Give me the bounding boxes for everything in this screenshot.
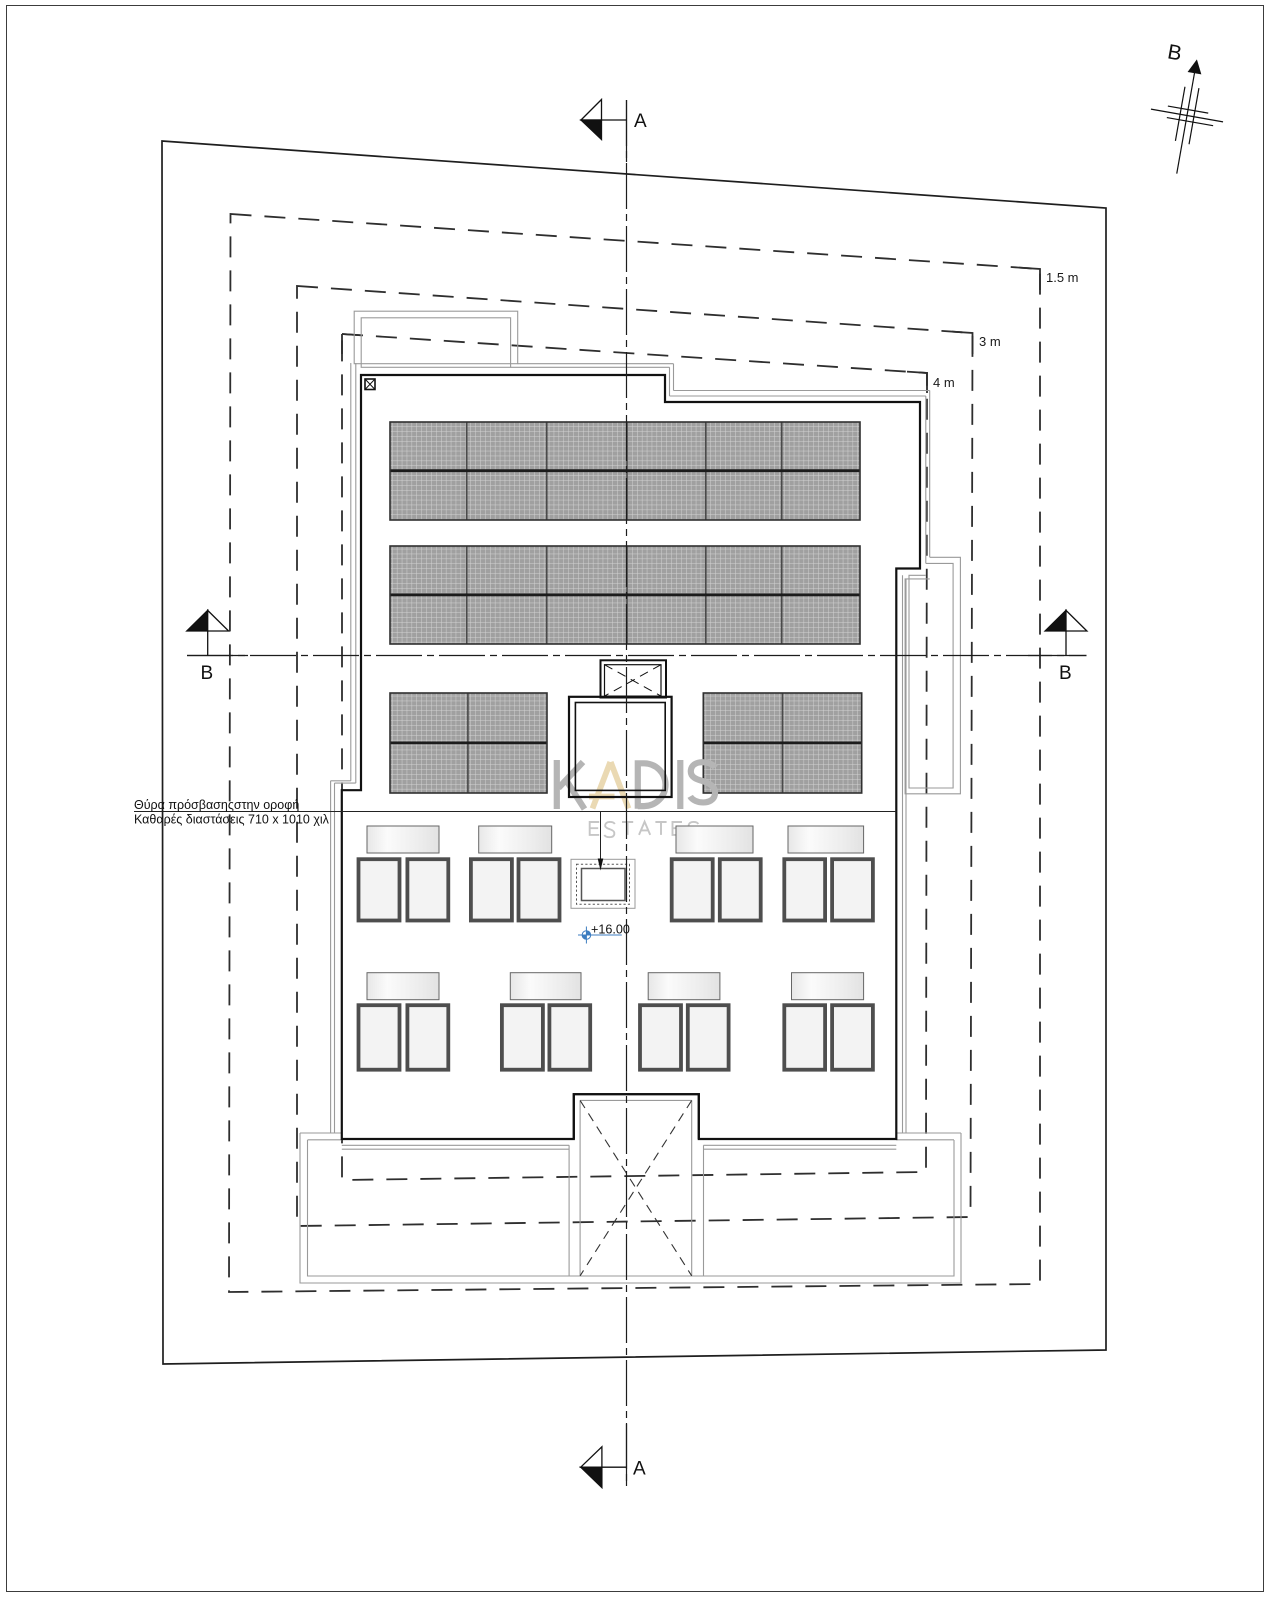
svg-text:3 m: 3 m <box>979 334 1001 349</box>
svg-text:Καθαρές διαστάσεις 710 x 1010: Καθαρές διαστάσεις 710 x 1010 χιλ <box>134 813 330 827</box>
svg-text:1.5 m: 1.5 m <box>1046 270 1079 285</box>
svg-text:Θύρα πρόσβασηςστην οροφή: Θύρα πρόσβασηςστην οροφή <box>134 798 299 812</box>
svg-text:4 m: 4 m <box>933 375 955 390</box>
svg-text:B: B <box>201 663 214 684</box>
svg-text:A: A <box>634 111 647 132</box>
svg-text:B: B <box>1059 663 1072 684</box>
svg-text:+16.00: +16.00 <box>591 922 630 936</box>
svg-text:A: A <box>633 1459 646 1480</box>
